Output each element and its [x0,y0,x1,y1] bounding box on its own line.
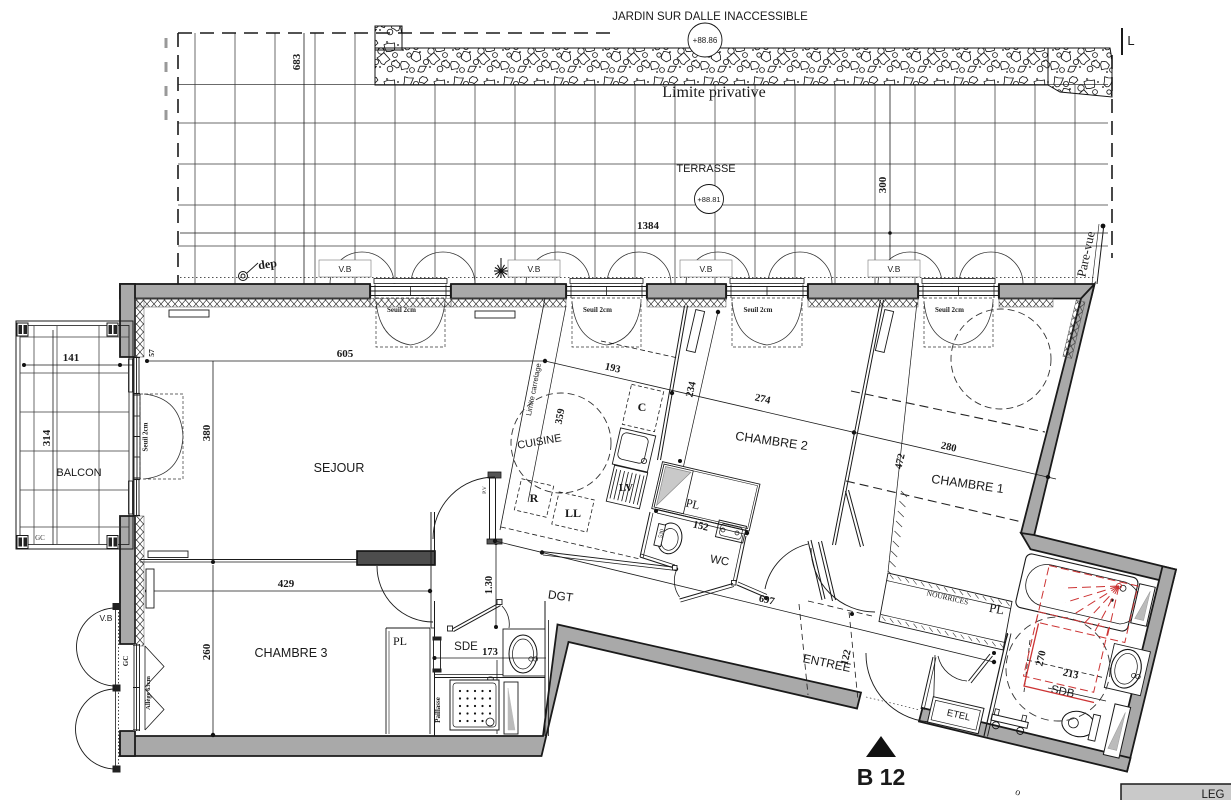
svg-text:Paillasse: Paillasse [434,697,442,723]
svg-text:380: 380 [201,424,213,441]
svg-text:V.B: V.B [339,264,352,274]
svg-text:P.V: P.V [482,486,488,494]
svg-text:260: 260 [201,643,213,660]
svg-text:V.B: V.B [888,264,901,274]
svg-text:GC: GC [35,534,45,542]
svg-text:JARDIN SUR DALLE INACCESSIBLE: JARDIN SUR DALLE INACCESSIBLE [612,11,808,23]
svg-text:Allège 63cm: Allège 63cm [145,676,152,710]
svg-text:V.B: V.B [700,264,713,274]
svg-text:V.B: V.B [100,613,113,623]
svg-text:57: 57 [147,349,156,357]
svg-text:1.30: 1.30 [484,576,495,594]
svg-text:LEG: LEG [1201,789,1224,800]
svg-text:1384: 1384 [637,220,660,232]
svg-text:Seuil 2cm: Seuil 2cm [583,306,612,314]
svg-text:PL: PL [393,634,407,648]
svg-text:Seuil 2cm: Seuil 2cm [142,422,150,451]
svg-text:LV: LV [619,482,633,494]
svg-text:V.B: V.B [528,264,541,274]
svg-text:683: 683 [291,53,303,70]
svg-text:+88.81: +88.81 [697,195,720,204]
svg-text:PL: PL [988,600,1006,617]
svg-text:LL: LL [565,506,581,520]
svg-text:BALCON: BALCON [56,467,101,479]
svg-text:SEJOUR: SEJOUR [314,461,365,475]
svg-text:Seuil 2cm: Seuil 2cm [744,306,773,314]
svg-text:429: 429 [278,578,295,590]
svg-text:314: 314 [41,429,53,446]
svg-text:B 12: B 12 [857,764,906,790]
svg-text:R: R [530,491,539,505]
svg-text:141: 141 [63,352,80,364]
svg-text:300: 300 [877,176,889,193]
svg-text:173: 173 [482,647,498,658]
svg-text:SDE: SDE [454,641,478,653]
svg-text:Seuil 2cm: Seuil 2cm [387,306,416,314]
svg-text:Seuil 2cm: Seuil 2cm [935,306,964,314]
svg-text:C: C [638,400,647,414]
svg-text:605: 605 [337,348,354,360]
svg-text:TERRASSE: TERRASSE [676,163,735,175]
svg-text:GC: GC [122,656,130,667]
svg-text:+88.86: +88.86 [693,36,718,45]
svg-text:CHAMBRE 3: CHAMBRE 3 [255,646,328,660]
svg-text:Limite privative: Limite privative [662,84,766,101]
svg-text:L: L [1127,33,1134,48]
svg-text:dep: dep [257,256,278,273]
